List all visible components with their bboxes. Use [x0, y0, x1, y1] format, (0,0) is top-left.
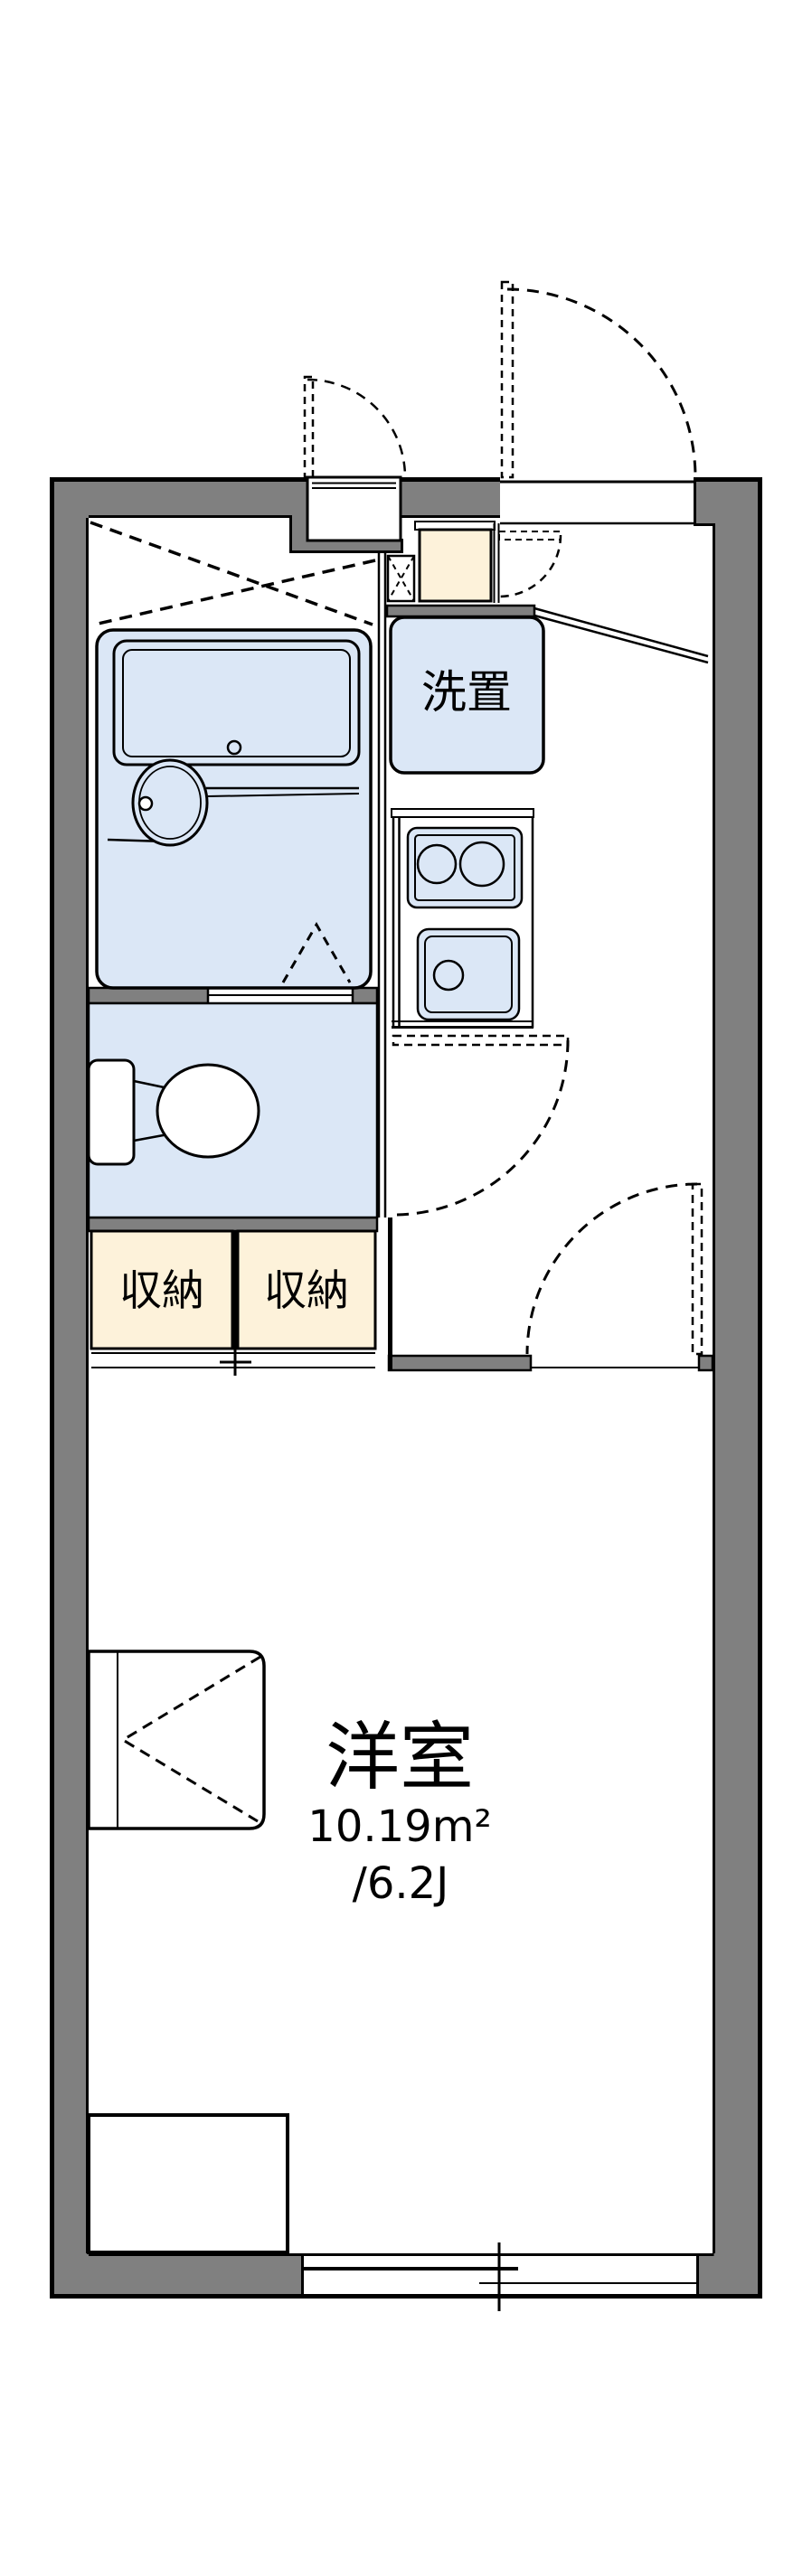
- storage-niche-box: [307, 477, 401, 541]
- laundry-space: 洗置: [391, 617, 543, 773]
- wall-left: [50, 477, 89, 2299]
- laundry-label: 洗置: [421, 666, 512, 719]
- wall-bottom-right-block: [696, 2253, 762, 2299]
- counter-unit: [89, 2115, 288, 2252]
- wall-below-toilet: [89, 1217, 377, 1231]
- shoe-cabinet-box: [420, 530, 491, 601]
- toilet-tank: [89, 1060, 134, 1164]
- sliding-window: [301, 2242, 696, 2311]
- room-door-arc: [527, 1184, 697, 1354]
- wall-band-under-shoebox: [387, 606, 534, 616]
- toilet-bowl-icon: [157, 1065, 259, 1157]
- storage-closets: 収納 収納: [91, 1231, 375, 1376]
- exterior-storage-niche: [307, 477, 401, 541]
- kitchen-top-band: [392, 809, 533, 817]
- washroom-door-leaf: [393, 1036, 568, 1045]
- bathroom: [97, 630, 371, 988]
- room-labels: 洋室 10.19m² /6.2J: [307, 1715, 491, 1909]
- wall-bath-toilet-right: [353, 988, 377, 1003]
- western-room-furniture: [89, 1651, 288, 2252]
- exterior-storage-door-leaf: [305, 377, 313, 477]
- western-room-area-tatami: /6.2J: [353, 1858, 449, 1909]
- floorplan-drawing: 収納 収納 洗置: [0, 0, 812, 2576]
- folding-bed-unit: [89, 1651, 264, 1829]
- wall-bath-toilet-left: [89, 988, 208, 1003]
- genkan-door-arc: [499, 535, 561, 597]
- wall-right: [713, 506, 762, 2255]
- toilet-room: [89, 1003, 377, 1217]
- genkan-step-diagonal: [534, 608, 708, 663]
- stove-outer: [408, 828, 522, 907]
- genkan-door-leaf: [499, 531, 561, 540]
- shoe-cabinet: [415, 522, 499, 603]
- partition-double-line: [379, 553, 385, 1217]
- wall-hall-room: [389, 1356, 531, 1370]
- pipe-space: [388, 556, 414, 601]
- wall-top-left: [50, 477, 500, 518]
- floorplan-canvas: 収納 収納 洗置: [0, 0, 812, 2576]
- shoe-cabinet-side-frame: [495, 523, 499, 603]
- western-room-label: 洋室: [326, 1715, 474, 1800]
- entrance-door-arc: [507, 289, 695, 477]
- storage-sliding-track: [91, 1353, 375, 1368]
- storage-right-label: 収納: [264, 1266, 349, 1316]
- washroom-door-arc: [393, 1040, 568, 1215]
- wall-bottom-left: [50, 2253, 301, 2299]
- room-door-leaf: [693, 1184, 702, 1354]
- kitchen: [392, 809, 533, 1028]
- exterior-storage-door-arc: [307, 380, 405, 477]
- entrance-door-leaf: [502, 282, 513, 477]
- western-room-area-sqm: 10.19m²: [307, 1801, 491, 1852]
- storage-left-label: 収納: [119, 1266, 204, 1316]
- washbasin-faucet-icon: [139, 797, 152, 810]
- wall-hall-room-stub: [699, 1356, 713, 1370]
